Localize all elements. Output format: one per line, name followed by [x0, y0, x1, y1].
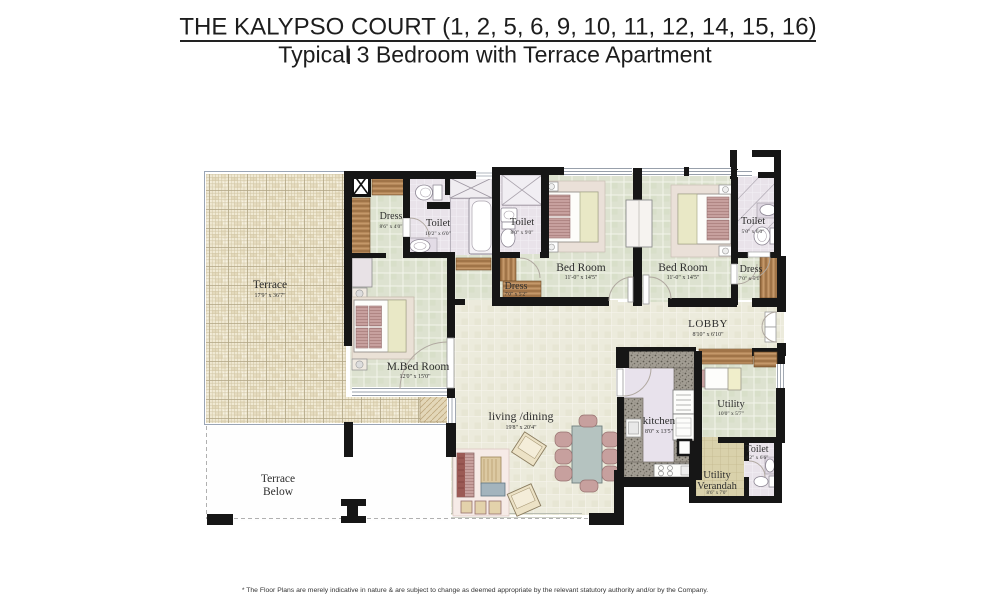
svg-text:4'2" x 6'6": 4'2" x 6'6": [746, 455, 769, 461]
svg-text:10'0" x 5'7": 10'0" x 5'7": [718, 411, 744, 417]
svg-text:* The Floor Plans are merely i: * The Floor Plans are merely indicative …: [242, 587, 708, 594]
svg-text:19'8" x 20'4": 19'8" x 20'4": [505, 425, 537, 431]
svg-text:Typical 3 Bedroom with Terrace: Typical 3 Bedroom with Terrace Apartment: [278, 42, 712, 68]
svg-text:Toilet: Toilet: [510, 217, 534, 228]
svg-text:Bed Room: Bed Room: [658, 262, 708, 274]
svg-text:Toilet: Toilet: [745, 444, 768, 455]
svg-text:M.Bed Room: M.Bed Room: [387, 361, 450, 373]
svg-text:8'0" x 9'0": 8'0" x 9'0": [511, 230, 534, 236]
svg-text:Toilet: Toilet: [426, 218, 450, 229]
svg-text:7'0" x 5'1": 7'0" x 5'1": [739, 276, 762, 282]
svg-text:Utility: Utility: [717, 399, 745, 410]
svg-text:Terrace: Terrace: [253, 279, 287, 291]
svg-text:LOBBY: LOBBY: [688, 318, 728, 330]
svg-text:17'9" x 36'7": 17'9" x 36'7": [254, 293, 286, 299]
svg-text:7'0" x 5'2": 7'0" x 5'2": [505, 292, 528, 298]
svg-text:Below: Below: [263, 486, 294, 498]
svg-text:Toilet: Toilet: [741, 216, 765, 227]
svg-text:Dress: Dress: [380, 211, 403, 222]
svg-text:Utility: Utility: [703, 470, 731, 481]
svg-text:5'0" x 6'0": 5'0" x 6'0": [742, 229, 765, 235]
svg-text:8'0" x 13'5": 8'0" x 13'5": [645, 429, 674, 435]
svg-text:8'6" x 7'0": 8'6" x 7'0": [707, 491, 728, 496]
svg-text:kitchen: kitchen: [643, 415, 676, 427]
svg-text:8'10" x 6'10": 8'10" x 6'10": [692, 332, 724, 338]
svg-text:11'-0" x 14'5": 11'-0" x 14'5": [667, 275, 700, 281]
svg-text:Bed Room: Bed Room: [556, 262, 606, 274]
svg-text:THE KALYPSO COURT (1, 2, 5, 6,: THE KALYPSO COURT (1, 2, 5, 6, 9, 10, 11…: [179, 14, 816, 41]
svg-text:living /dining: living /dining: [488, 409, 553, 423]
svg-text:Dress: Dress: [505, 281, 528, 292]
svg-text:Terrace: Terrace: [261, 473, 295, 485]
svg-text:12'0" x 15'0": 12'0" x 15'0": [399, 374, 431, 380]
svg-text:11'-0" x 14'5": 11'-0" x 14'5": [565, 275, 598, 281]
svg-text:10'2" x 6'0": 10'2" x 6'0": [425, 231, 451, 237]
svg-text:8'6" x 4'0": 8'6" x 4'0": [380, 224, 403, 230]
svg-text:Dress: Dress: [740, 264, 763, 275]
